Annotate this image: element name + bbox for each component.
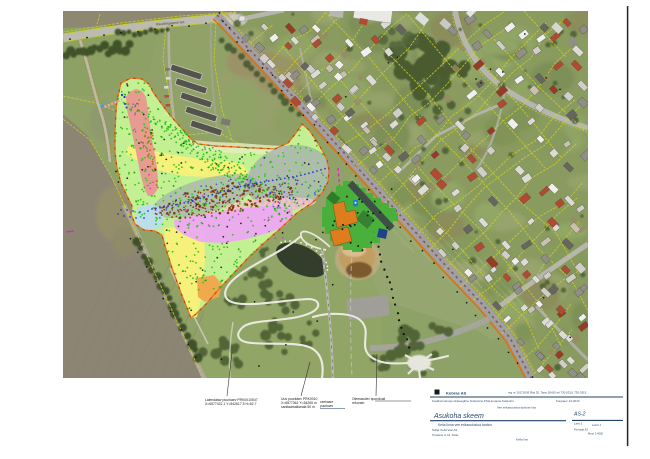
svg-text:AS-2: AS-2 (573, 412, 586, 418)
svg-text:Moot 1:4000: Moot 1:4000 (588, 432, 603, 436)
svg-text:X=6577422.1 Y=542617.5 H=52.: X=6577422.1 Y=542617.5 H=52.7 (205, 402, 257, 406)
svg-text:Lehti 1: Lehti 1 (592, 423, 601, 427)
svg-text:puurkaev: puurkaev (320, 404, 334, 408)
svg-text:Keskkonnamoju strateegiline hi: Keskkonnamoju strateegiline hindamine KS… (432, 399, 514, 403)
svg-text:Toostuse tn 14, Keila: Toostuse tn 14, Keila (432, 433, 458, 437)
svg-text:Tellija: Keila Vesi AS: Tellija: Keila Vesi AS (432, 428, 457, 432)
svg-text:Formaat A3: Formaat A3 (574, 428, 588, 432)
svg-text:Leht 1: Leht 1 (574, 422, 583, 426)
svg-text:Kobras AS: Kobras AS (446, 390, 467, 395)
svg-text:rekonstr.: rekonstr. (352, 401, 365, 405)
svg-text:Keila linna vee erikasutusloa: Keila linna vee erikasutusloa taotlus (438, 423, 492, 427)
svg-text:reg nr 10171636 Riia 35, Tart: reg nr 10171636 Riia 35, Tartu 50410 tel… (508, 391, 587, 395)
svg-text:Kuupaev: 10.2013: Kuupaev: 10.2013 (556, 399, 580, 403)
svg-text:Vee erikasutusloa taotluse lis: Vee erikasutusloa taotluse lisa (497, 406, 536, 410)
svg-text:Keila linn: Keila linn (516, 438, 529, 442)
svg-text:sanitaarkaitseala 50 m: sanitaarkaitseala 50 m (281, 405, 315, 409)
svg-text:Asukoha skeem: Asukoha skeem (433, 413, 484, 420)
